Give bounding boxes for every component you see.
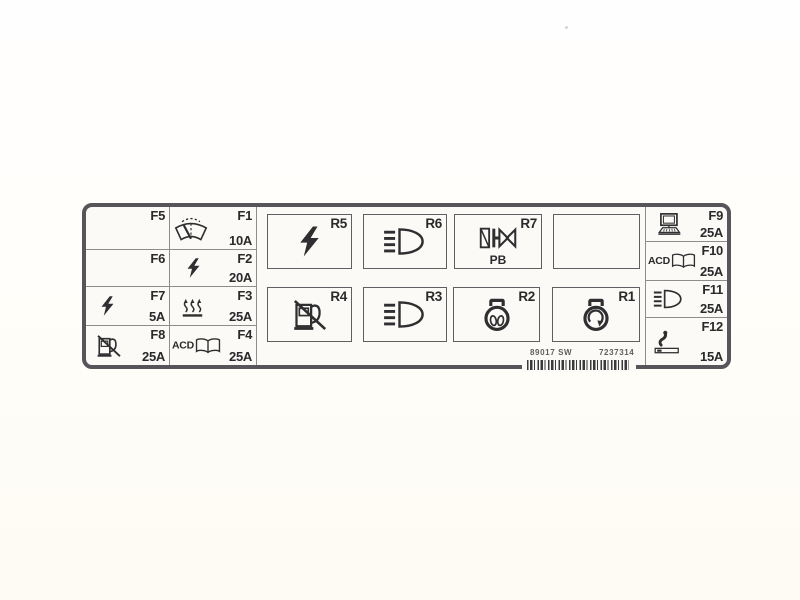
relay-label-r5: R5: [330, 216, 347, 231]
fuse-amp-f2: 20A: [229, 271, 252, 284]
fuse-label-f6: F6: [150, 252, 165, 265]
fuse-cell-f1: F1 10A: [170, 207, 257, 250]
fuse-cell-f3: F3 25A: [170, 287, 257, 326]
fuse-cell-f8: F8 25A: [86, 326, 170, 365]
fuse-label-f8: F8: [150, 328, 165, 341]
book-icon: [195, 337, 221, 354]
fuse-amp-f12: 15A: [700, 350, 723, 363]
fuse-label-f11: F11: [702, 283, 723, 296]
relay-box-r5: R5: [267, 214, 352, 269]
fuse-label-f9: F9: [708, 209, 723, 222]
fuse-amp-f8: 25A: [142, 350, 165, 363]
relay-label-r2: R2: [518, 289, 535, 304]
scanned-fuse-box-label-page: { "colors": { "panel_border": "#55555a",…: [0, 0, 800, 600]
headlight-icon: [383, 227, 427, 256]
relay-label-r1: R1: [618, 289, 635, 304]
fuse-grid-left: F5 F1 10A F6 F2 20: [86, 207, 257, 365]
fuse-amp-f3: 25A: [229, 310, 252, 323]
scan-speck: [565, 26, 568, 29]
relay-box-r1: R1: [552, 287, 640, 342]
fuse-label-f1: F1: [237, 209, 252, 222]
relay-box-r3: R3: [363, 287, 447, 342]
fuse-cell-f6: F6: [86, 250, 170, 287]
fuse-label-f2: F2: [237, 252, 252, 265]
solenoid-valve-icon: [479, 224, 517, 252]
headlight-icon: [653, 289, 684, 309]
fuel-pump-off-icon: [292, 298, 328, 332]
rotating-lamp-icon: [579, 297, 613, 333]
barcode-area: [522, 356, 636, 372]
headlight-icon: [383, 300, 427, 329]
relay-box-r6: R6: [363, 214, 447, 269]
fuse-amp-f7: 5A: [149, 310, 165, 323]
relay-label-r6: R6: [425, 216, 442, 231]
lightning-icon: [100, 294, 115, 319]
relay-box-r2: R2: [453, 287, 540, 342]
fuse-cell-f11: F11 25A: [646, 281, 727, 318]
fuse-cell-f4: ACD F4 25A: [170, 326, 257, 365]
fuse-panel-label: F5 F1 10A F6 F2 20: [82, 203, 731, 369]
book-icon: [671, 253, 696, 269]
lightning-icon: [298, 225, 321, 258]
fuse-cell-f7: F7 5A: [86, 287, 170, 326]
acd-book-icon: ACD: [648, 253, 696, 269]
barcode: [527, 360, 629, 370]
fuse-label-f5: F5: [150, 209, 165, 222]
cigarette-lighter-icon: [654, 330, 681, 354]
lightning-icon: [186, 256, 201, 281]
fuse-cell-f12: F12 15A: [646, 318, 727, 365]
fuse-cell-f2: F2 20A: [170, 250, 257, 287]
relay-box-r7: R7 PB: [454, 214, 542, 269]
fuse-amp-f4: 25A: [229, 350, 252, 363]
fuse-label-f12: F12: [701, 320, 723, 333]
relay-box-empty: [553, 214, 640, 269]
acd-book-icon: ACD: [172, 337, 221, 354]
fuse-amp-f11: 25A: [700, 302, 723, 315]
acd-text: ACD: [172, 340, 194, 352]
fuse-label-f3: F3: [237, 289, 252, 302]
dual-filament-bulb-icon: [480, 297, 514, 333]
relay-sub-label-pb: PB: [455, 253, 541, 267]
heater-icon: [182, 294, 203, 319]
fuse-grid-right: F9 25A ACD F10 25A F11 25A: [645, 207, 727, 365]
relay-box-r4: R4: [267, 287, 352, 342]
fuse-amp-f1: 10A: [229, 234, 252, 247]
fuse-cell-f5: F5: [86, 207, 170, 250]
computer-icon: [655, 213, 682, 236]
fuse-label-f7: F7: [150, 289, 165, 302]
fuse-label-f10: F10: [701, 244, 723, 257]
fuse-amp-f9: 25A: [700, 226, 723, 239]
fuse-cell-f10: ACD F10 25A: [646, 242, 727, 281]
acd-text: ACD: [648, 255, 670, 267]
fuse-amp-f10: 25A: [700, 265, 723, 278]
relay-label-r4: R4: [330, 289, 347, 304]
fuse-cell-f9: F9 25A: [646, 207, 727, 242]
relay-label-r7: R7: [520, 216, 537, 231]
fuel-pump-off-icon: [96, 333, 122, 358]
relay-label-r3: R3: [425, 289, 442, 304]
fuse-label-f4: F4: [237, 328, 252, 341]
wiper-washer-icon: [174, 215, 208, 241]
